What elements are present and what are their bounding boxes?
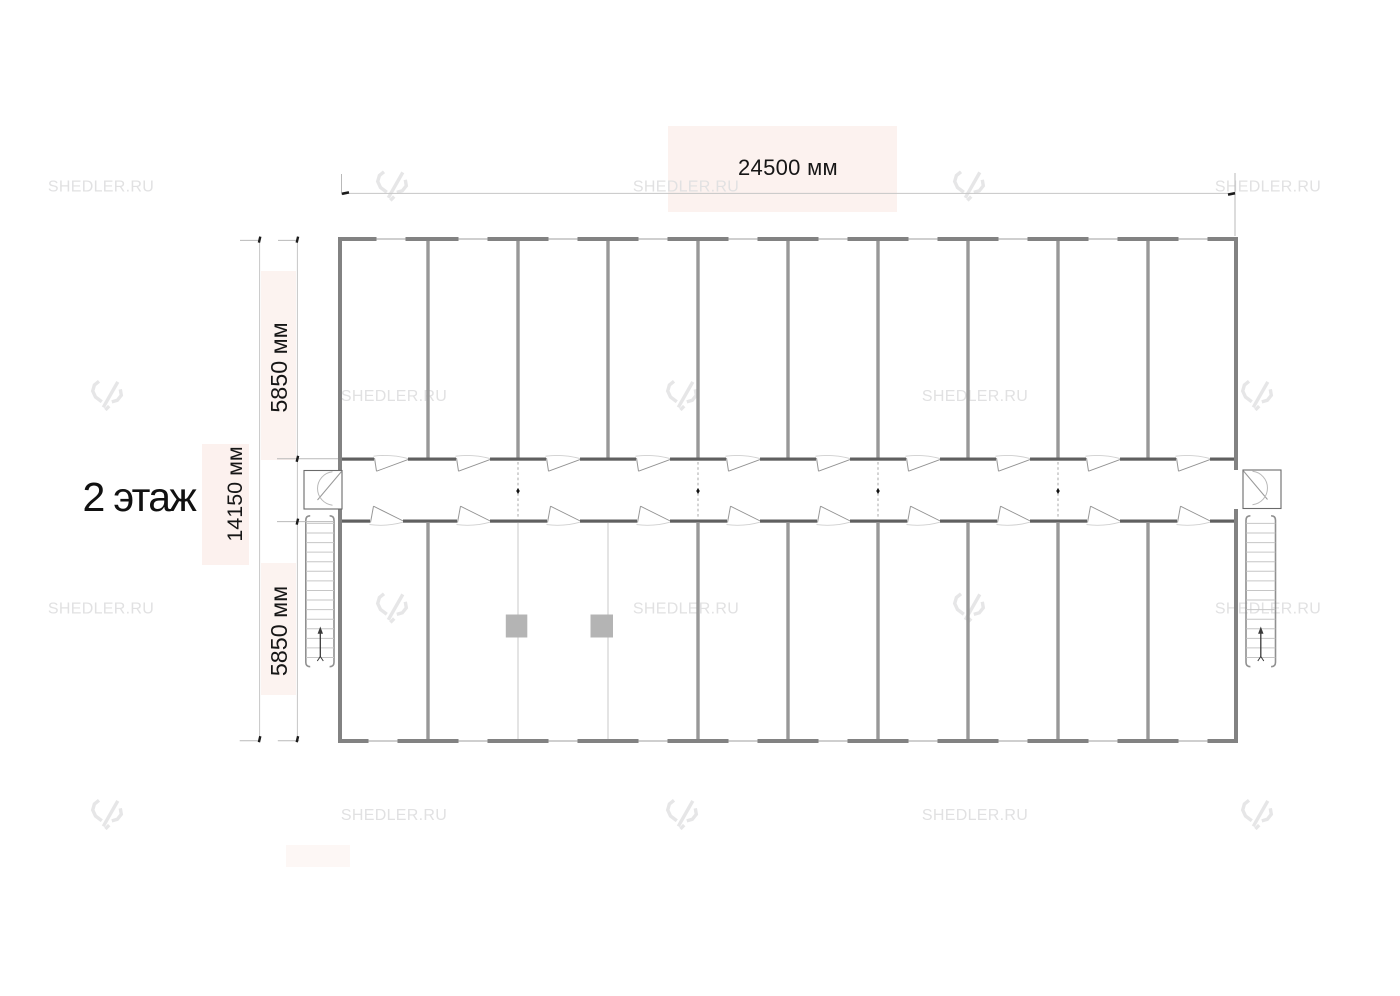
svg-text:14150 мм: 14150 мм: [223, 446, 247, 541]
svg-text:5850 мм: 5850 мм: [266, 586, 292, 676]
svg-text:SHEDLER.RU: SHEDLER.RU: [48, 601, 154, 618]
svg-text:SHEDLER.RU: SHEDLER.RU: [922, 807, 1028, 824]
svg-text:2 этаж: 2 этаж: [83, 474, 198, 520]
svg-text:SHEDLER.RU: SHEDLER.RU: [341, 388, 447, 405]
svg-text:SHEDLER.RU: SHEDLER.RU: [1215, 601, 1321, 618]
svg-text:SHEDLER.RU: SHEDLER.RU: [633, 601, 739, 618]
svg-text:SHEDLER.RU: SHEDLER.RU: [341, 807, 447, 824]
svg-text:24500 мм: 24500 мм: [738, 155, 838, 180]
svg-text:SHEDLER.RU: SHEDLER.RU: [922, 388, 1028, 405]
svg-text:SHEDLER.RU: SHEDLER.RU: [48, 179, 154, 196]
svg-text:5850 мм: 5850 мм: [266, 322, 292, 412]
